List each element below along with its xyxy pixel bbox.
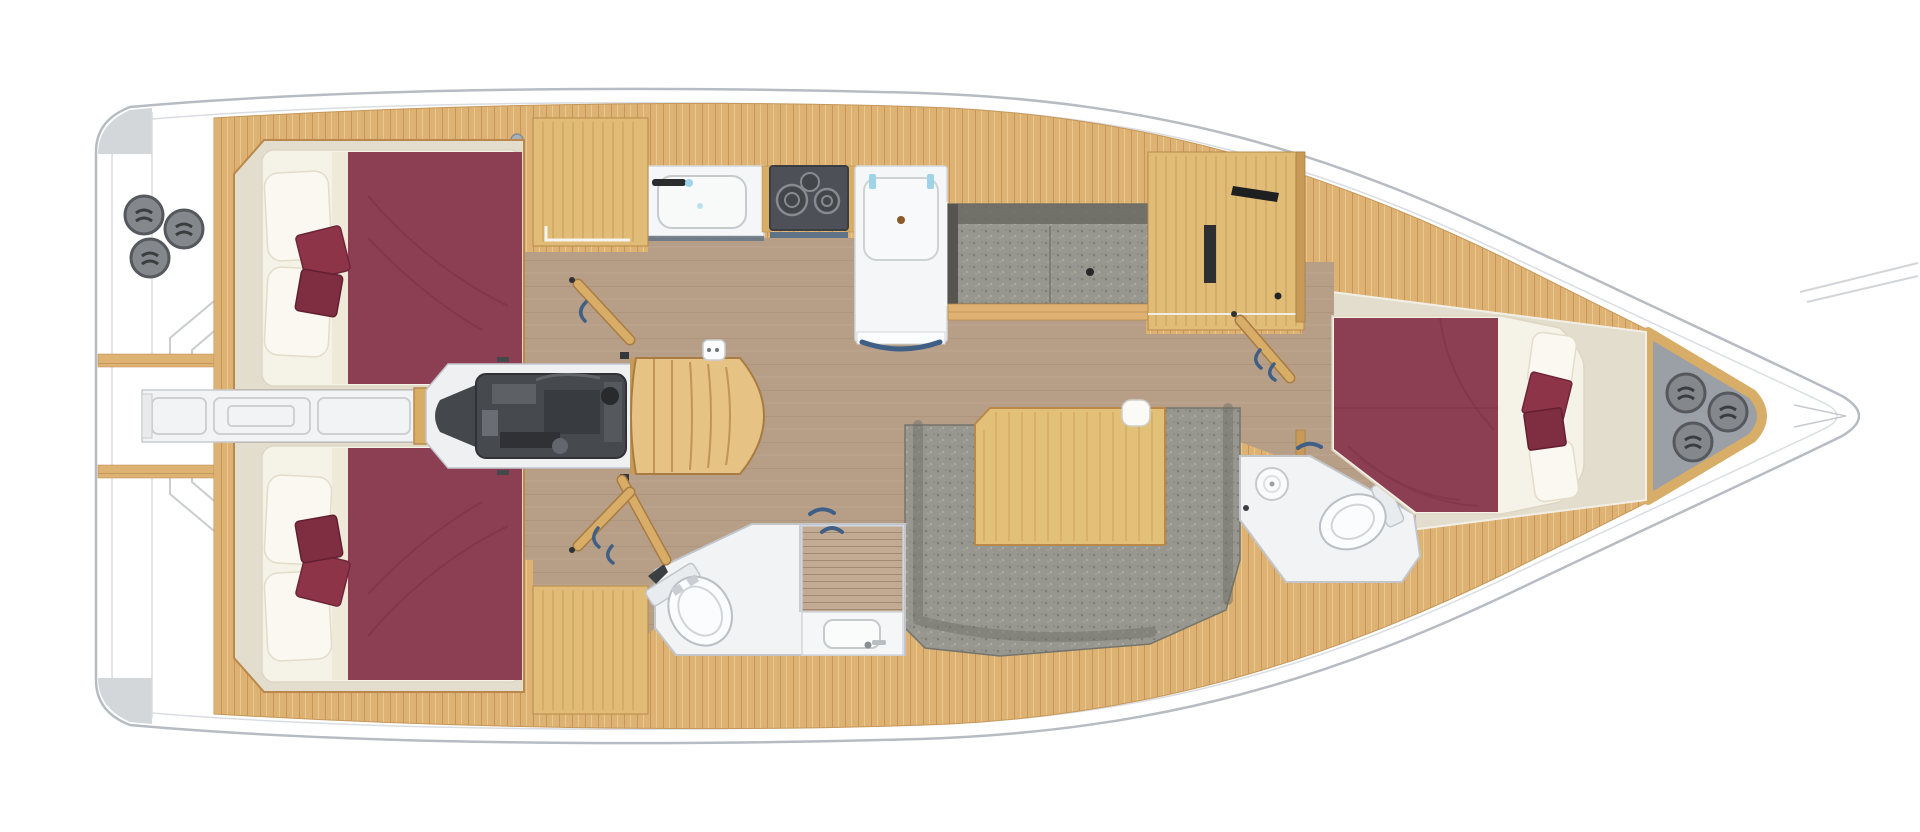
forestay-line <box>1800 263 1918 302</box>
duvet-maroon <box>348 152 522 384</box>
dinette: Starboard dinette — U-shaped settee with… <box>905 400 1240 656</box>
fridge-knob <box>897 216 905 224</box>
basin-drain <box>1270 482 1275 487</box>
shower-grate <box>802 526 903 612</box>
pouf <box>1122 400 1150 426</box>
mast-step-bolt <box>715 348 719 352</box>
stern-corner-wedge-bottom <box>98 678 152 724</box>
aft-cabin-starboard: Starboard aft double cabin — berth with … <box>234 442 524 692</box>
walkway-sill <box>142 394 152 438</box>
engine-compartment: Engine compartment under companionway <box>426 352 632 481</box>
stove-front <box>770 232 848 238</box>
steps-body <box>631 358 764 474</box>
floor-plan-canvas: Sailing yacht interior layout — 3-cabin … <box>0 0 1920 832</box>
wardrobe-starboard <box>533 586 648 714</box>
door-hinge <box>569 277 575 283</box>
bay-fitting <box>620 352 629 359</box>
compression-post <box>1086 268 1094 276</box>
bow-winch-icon <box>1667 374 1705 412</box>
stove-trim <box>762 166 770 232</box>
settee-backrest <box>948 204 1148 224</box>
burner-icon <box>815 189 839 213</box>
stern-teak-strip-top <box>98 354 214 367</box>
settee-port: Port straight settee <box>944 202 1148 320</box>
floor-fitting <box>1243 505 1249 511</box>
washbasin <box>824 620 880 648</box>
stern-walkway: Central transom walkway between aft cabi… <box>142 388 434 444</box>
stern-corner-wedge-top <box>98 108 152 154</box>
wardrobe-port <box>533 118 648 246</box>
stern-winch-icon <box>165 210 203 248</box>
burner-icon <box>801 173 819 191</box>
stern-winch-icon <box>131 239 169 277</box>
faucet-tip <box>685 179 693 187</box>
dinette-table <box>975 408 1165 545</box>
wardrobe-block <box>533 586 648 714</box>
aft-cabin-port: Port aft double cabin — berth with maroo… <box>234 140 524 390</box>
accent-cushion <box>295 515 344 564</box>
door-hinge <box>569 547 575 553</box>
basin-faucet <box>865 642 872 649</box>
faucet-icon <box>652 179 686 186</box>
bow-winch-icon <box>1709 393 1747 431</box>
mast-step <box>703 340 725 360</box>
duvet-maroon <box>348 448 522 680</box>
stern-teak-strip-bottom <box>98 465 214 478</box>
locker-slot <box>1204 225 1216 283</box>
fridge-hinge <box>927 174 934 189</box>
wardrobe-block <box>533 118 648 246</box>
door-hinge <box>1231 311 1237 317</box>
basin-spout <box>872 640 886 645</box>
accent-cushion <box>1524 408 1567 451</box>
mast-step-bolt <box>707 348 711 352</box>
yacht-floor-plan: Sailing yacht interior layout — 3-cabin … <box>0 0 1920 832</box>
bulkhead <box>1296 152 1305 322</box>
drain-dot <box>697 203 703 209</box>
bay-fitting <box>497 470 509 475</box>
stern-winch-icon <box>125 196 163 234</box>
accent-cushion <box>295 269 344 318</box>
burner-icon <box>777 185 807 215</box>
counter-front <box>648 236 764 241</box>
bow-winch-icon <box>1674 423 1712 461</box>
bay-fitting <box>497 357 509 362</box>
door-hinge <box>1275 293 1282 300</box>
fridge-hinge <box>869 174 876 189</box>
settee-slot <box>948 204 958 304</box>
